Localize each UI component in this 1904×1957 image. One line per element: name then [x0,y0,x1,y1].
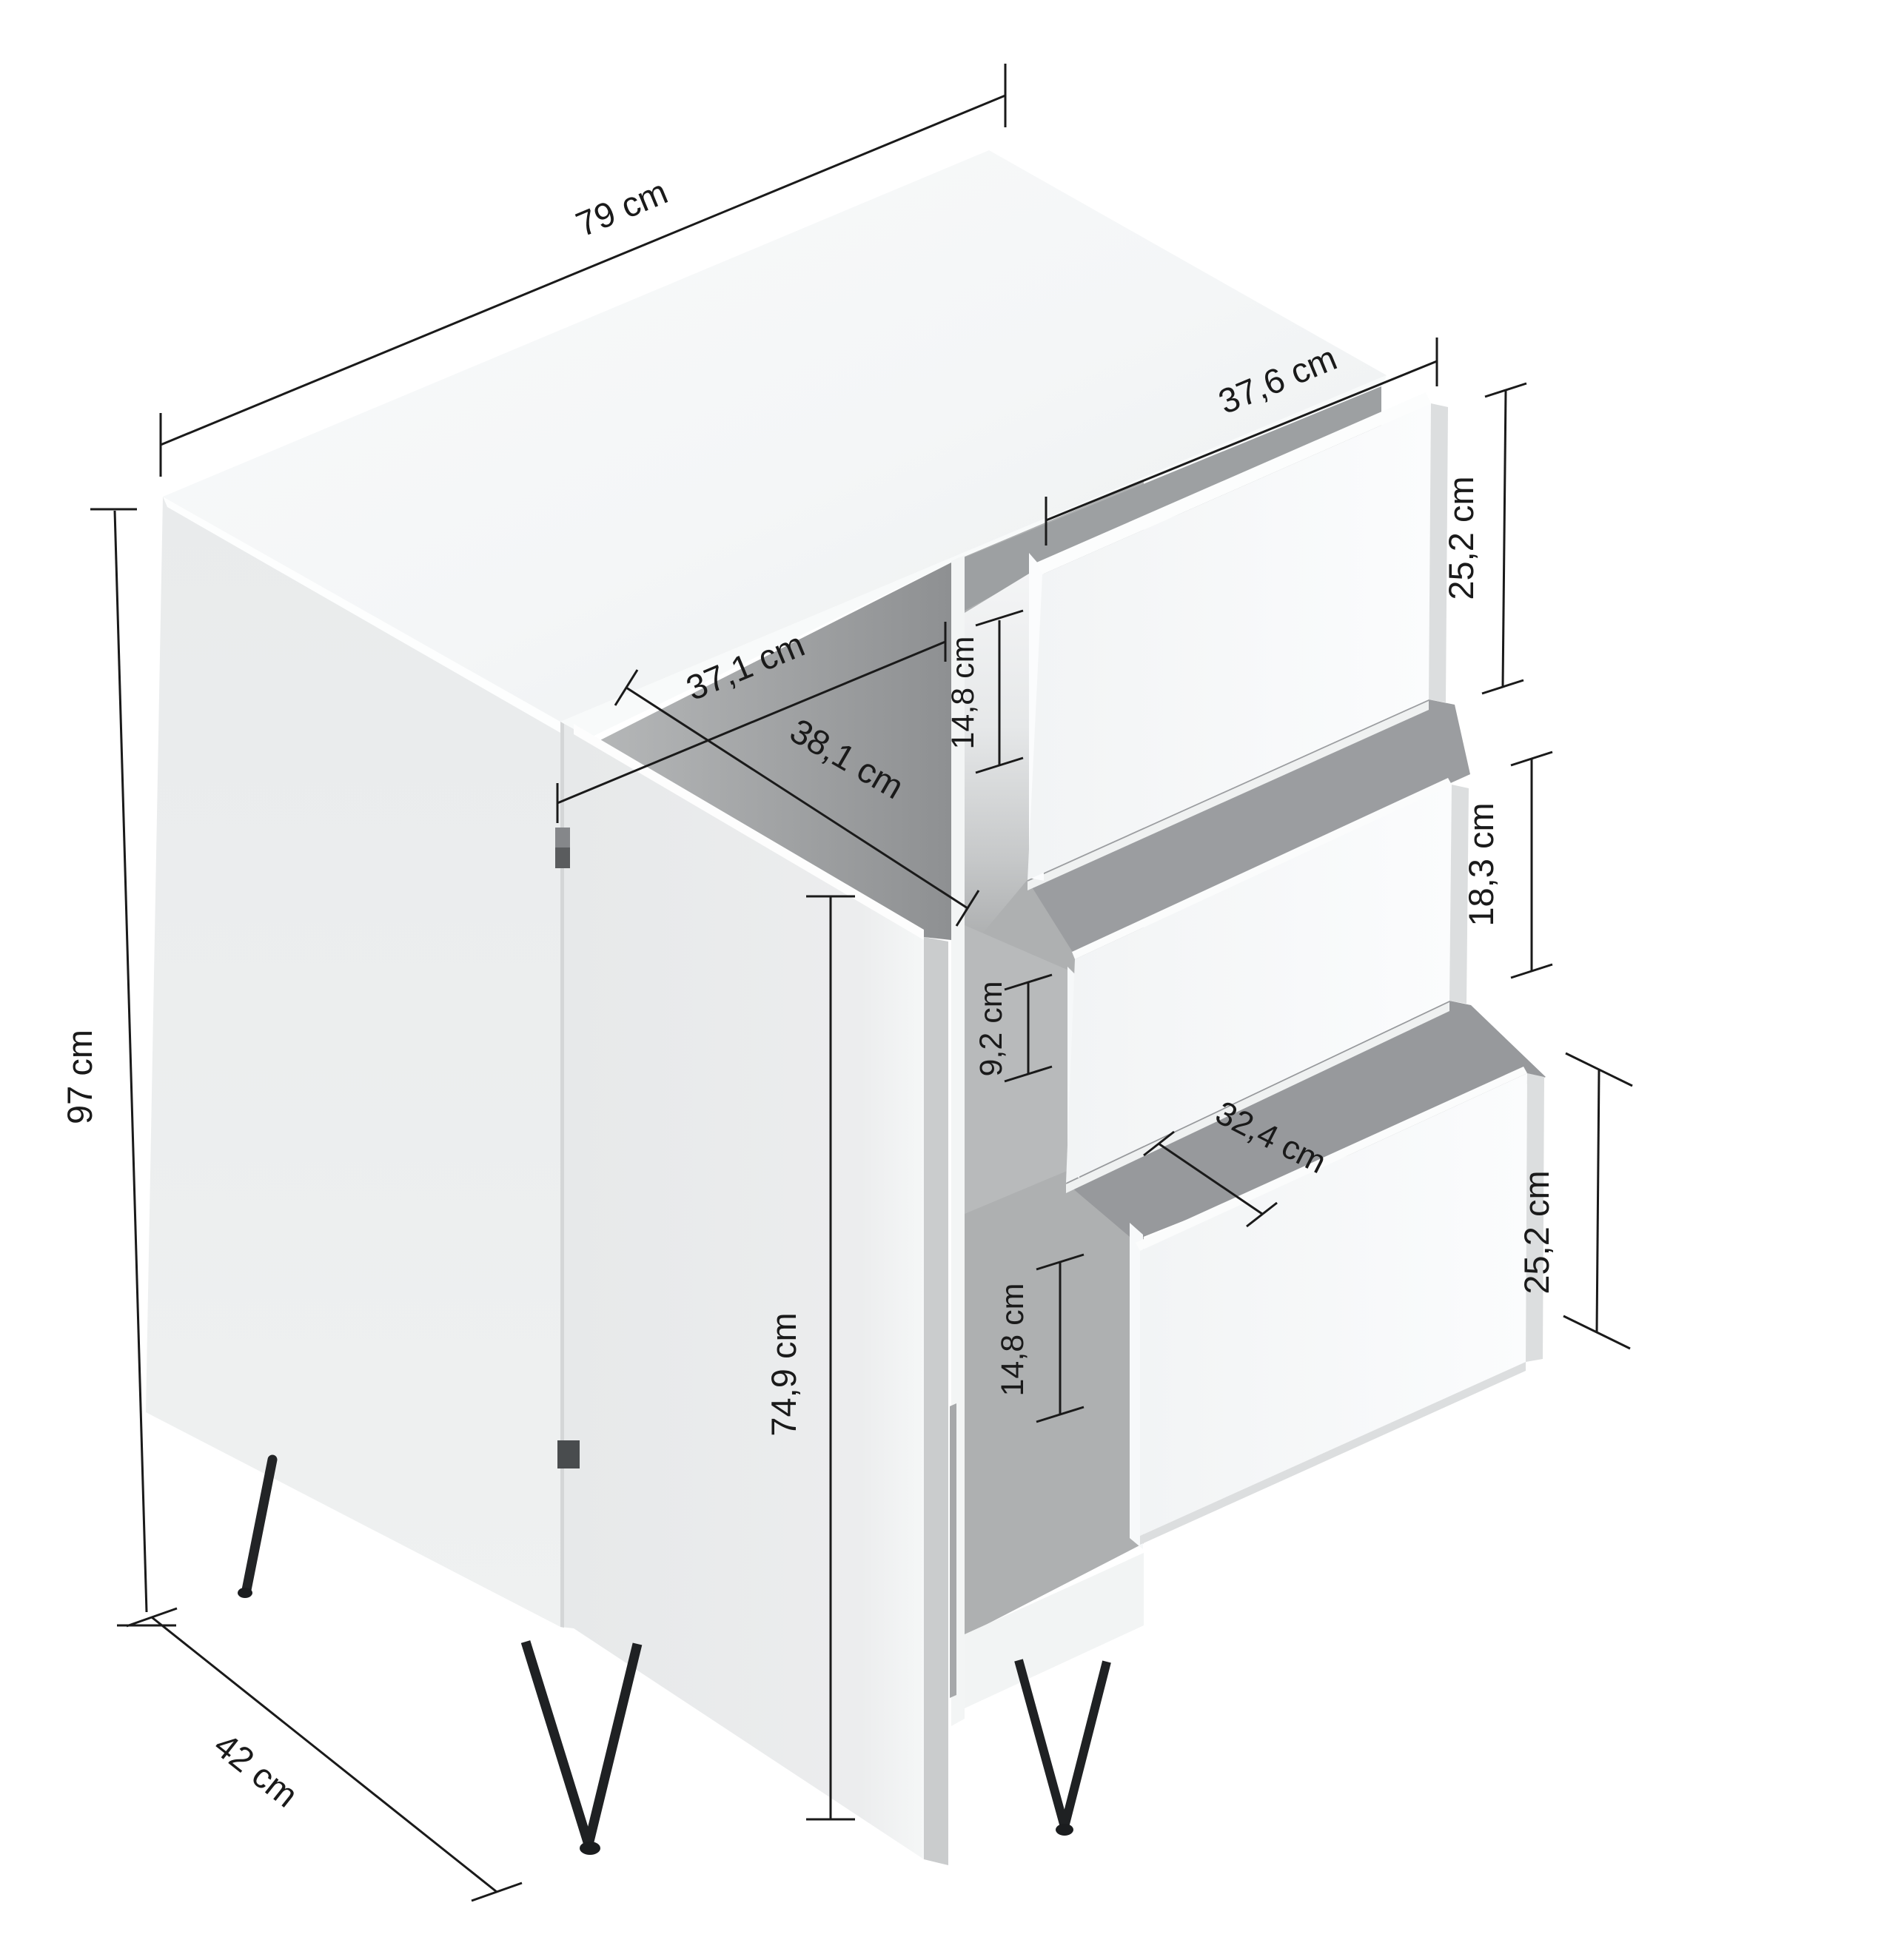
svg-text:25,2 cm: 25,2 cm [1441,476,1481,600]
svg-text:9,2 cm: 9,2 cm [973,981,1009,1076]
svg-text:74,9 cm: 74,9 cm [764,1312,803,1436]
svg-text:25,2 cm: 25,2 cm [1517,1170,1556,1294]
svg-text:97 cm: 97 cm [60,1030,99,1124]
svg-text:14,8 cm: 14,8 cm [945,637,981,750]
svg-text:14,8 cm: 14,8 cm [995,1283,1030,1397]
svg-text:18,3 cm: 18,3 cm [1461,802,1501,926]
